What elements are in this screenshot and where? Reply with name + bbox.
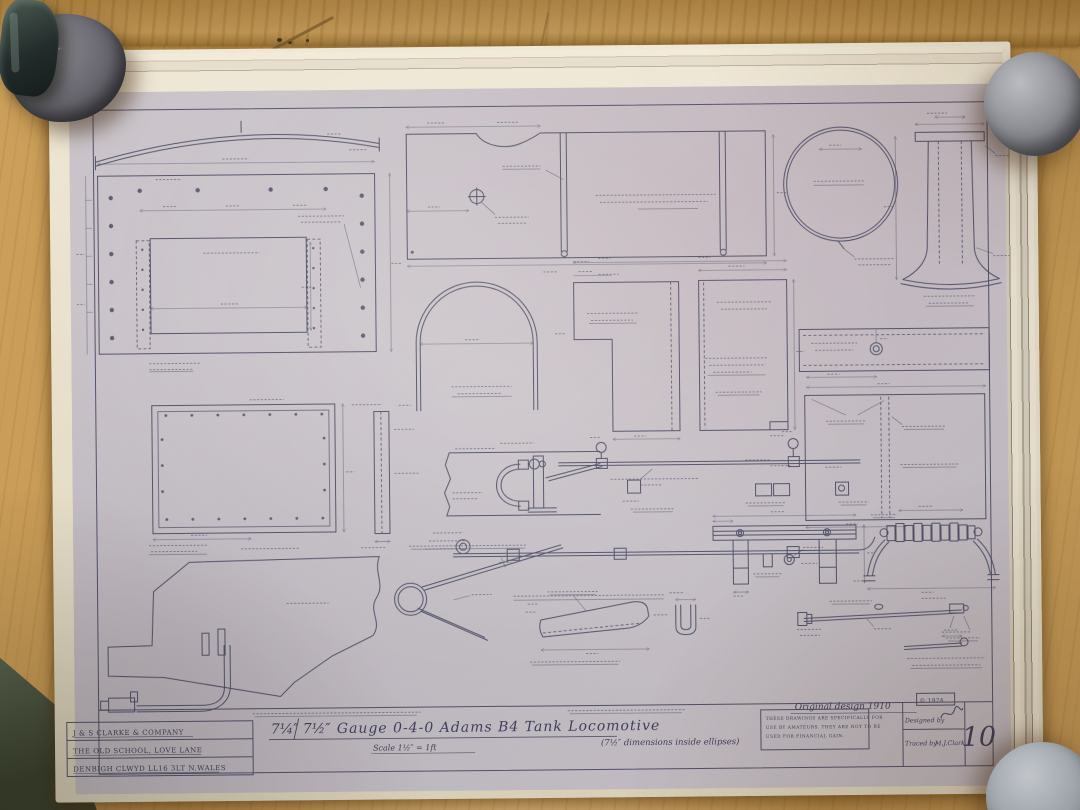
company-box: J & S CLARKE & COMPANY THE OLD SCHOOL, L… bbox=[72, 728, 226, 773]
disclaimer-box: THESE DRAWINGS ARE SPECIFICALLY FOR USE … bbox=[766, 716, 884, 740]
drawing-cab-front-plate bbox=[75, 157, 402, 372]
drawing-roof-profile bbox=[95, 120, 380, 181]
traced-by-label: Traced by bbox=[905, 740, 937, 747]
scale-note: Scale 1½″ = 1ft bbox=[373, 743, 437, 753]
drawing-strip-with-hole bbox=[799, 328, 990, 388]
clamp-highlight bbox=[9, 12, 19, 72]
designed-by-label: Designed by bbox=[904, 717, 945, 724]
paper-stack: 7¼″ 7½″ Gauge 0-4-0 Adams B4 Tank Locomo… bbox=[0, 0, 1080, 810]
border-frame bbox=[61, 102, 993, 777]
drawing-narrow-strip bbox=[352, 404, 419, 548]
sheet-number: 10 bbox=[962, 722, 997, 753]
drawing-fire-iron bbox=[394, 545, 564, 642]
paperweight-stone-top-right bbox=[984, 52, 1080, 156]
drawing-boiler-ring bbox=[783, 127, 898, 266]
title-block: 7¼″ 7½″ Gauge 0-4-0 Adams B4 Tank Locomo… bbox=[72, 697, 997, 774]
sheet-title: Gauge 0-4-0 Adams B4 Tank Locomotive bbox=[337, 718, 661, 737]
disclaimer-line-1: THESE DRAWINGS ARE SPECIFICALLY FOR bbox=[766, 716, 883, 722]
copyright-note: © 1974 bbox=[920, 697, 944, 704]
drawing-pipework bbox=[424, 431, 876, 601]
drawing-bunker-plate-R bbox=[698, 265, 805, 436]
photo-of-blueprint: 7¼″ 7½″ Gauge 0-4-0 Adams B4 Tank Locomo… bbox=[0, 0, 1080, 810]
drawing-shovel-blade bbox=[526, 591, 650, 665]
drawing-tank-side-panel bbox=[148, 399, 355, 555]
drawing-chimney bbox=[883, 112, 1011, 306]
drawing-bunker-plate-L bbox=[554, 257, 788, 440]
disclaimer-line-2: USE BY AMATEURS. THEY ARE NOT TO BE bbox=[766, 725, 881, 731]
original-design-note: Original design 1910 bbox=[795, 702, 891, 713]
company-line-1: J & S CLARKE & COMPANY bbox=[72, 728, 184, 737]
drawing-arch-former bbox=[398, 282, 538, 412]
locomotive-drawing: 7¼″ 7½″ Gauge 0-4-0 Adams B4 Tank Locomo… bbox=[0, 0, 1080, 810]
title-gauge-right: 7½″ bbox=[303, 721, 332, 737]
company-line-2: THE OLD SCHOOL, LOVE LANE bbox=[73, 746, 202, 755]
disclaimer-line-3: USED FOR FINANCIAL GAIN. bbox=[766, 734, 844, 740]
drawing-side-tank-sheet bbox=[406, 120, 787, 277]
drawing-pin bbox=[904, 630, 985, 669]
traced-by-value: M.J.Clark bbox=[934, 740, 965, 747]
ellipse-note: (7½″ dimensions inside ellipses) bbox=[601, 736, 740, 748]
